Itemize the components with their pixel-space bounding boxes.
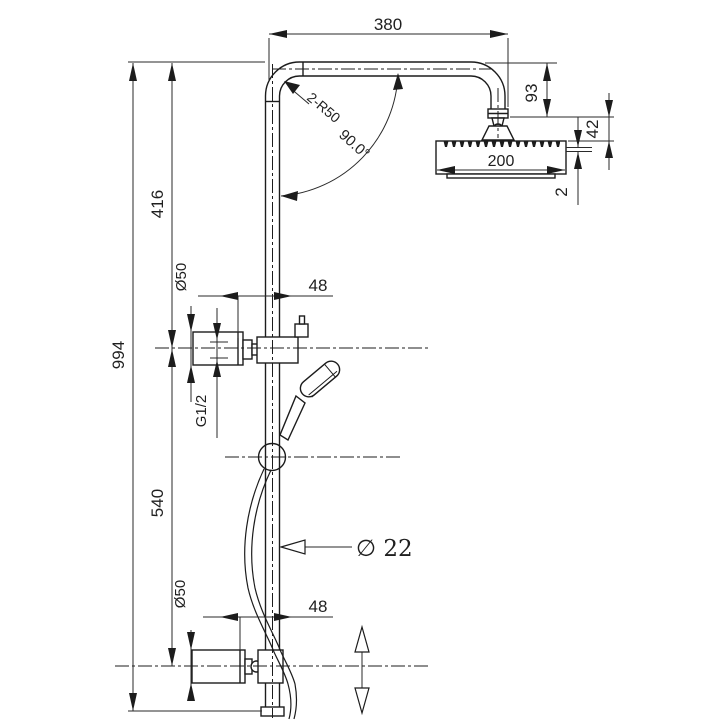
dimension-left-stack bbox=[128, 62, 265, 711]
dim-lower-height-label: 540 bbox=[148, 489, 167, 517]
angle-label: 90.0° bbox=[335, 126, 373, 162]
lower-supply-valve bbox=[192, 650, 284, 716]
dim-head-offset-label: 42 bbox=[583, 120, 602, 139]
radius-note-label: 2-R50 bbox=[304, 89, 344, 126]
pipe-diameter-label: ∅ 22 bbox=[356, 536, 413, 562]
nozzle-row bbox=[442, 141, 560, 148]
dim-arm-drop-label: 93 bbox=[522, 84, 541, 103]
hand-shower-head bbox=[297, 358, 343, 401]
pipe-diameter-leader bbox=[281, 540, 352, 554]
hand-shower bbox=[280, 358, 343, 440]
dim-total-width-label: 380 bbox=[374, 15, 402, 34]
hand-shower-holder-peg bbox=[295, 324, 308, 337]
dim-upper-bracket-offset-label: 48 bbox=[309, 276, 328, 295]
dim-upper-bracket-diameter-label: Ø50 bbox=[173, 263, 190, 291]
dim-spray-plate-label: 2 bbox=[552, 187, 571, 196]
hand-shower-handle bbox=[280, 396, 305, 440]
shower-column-technical-drawing: 380 93 42 2 200 2-R50 90.0° 416 994 540 … bbox=[0, 0, 720, 720]
slide-direction-arrow bbox=[355, 627, 369, 713]
dim-upper-height-label: 416 bbox=[148, 190, 167, 218]
thread-size-label: G1/2 bbox=[193, 395, 210, 428]
dim-lower-bracket-diameter-label: Ø50 bbox=[172, 580, 189, 608]
dim-head-width-label: 200 bbox=[488, 153, 515, 170]
spray-plate bbox=[447, 174, 555, 178]
dim-lower-bracket-offset-label: 48 bbox=[309, 597, 328, 616]
dim-total-height-label: 994 bbox=[109, 341, 128, 369]
